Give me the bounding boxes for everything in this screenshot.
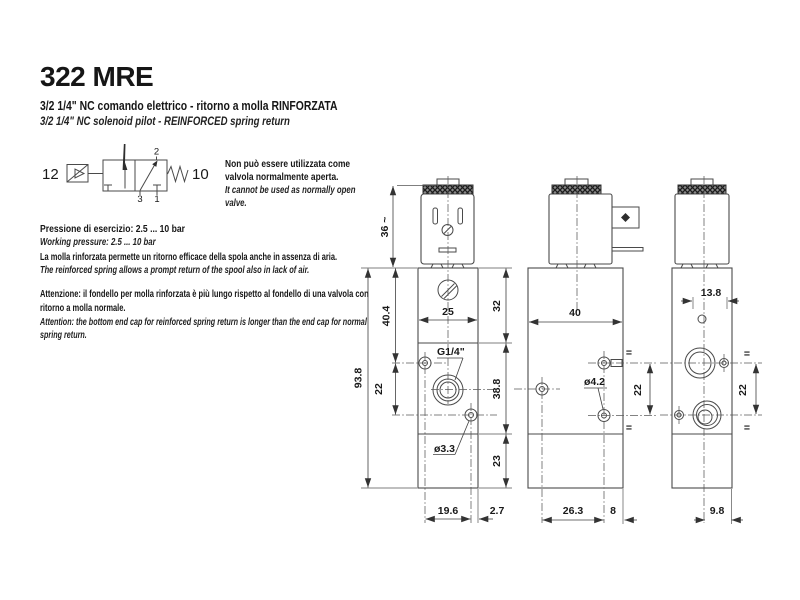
dim-front-coil-height: 36 ~ [379, 217, 391, 238]
dim-front-bottom-b: 2.7 [490, 505, 505, 517]
dim-side-equal-top: = [626, 347, 632, 359]
note-spring-english: The reinforced spring allows a prompt re… [40, 265, 309, 276]
subtitle-english: 3/2 1/4" NC solenoid pilot - REINFORCED … [40, 114, 290, 128]
pneumatic-symbol: 12 10 2 3 1 [36, 144, 241, 212]
note-nc-italian: Non può essere utilizzata come valvola n… [225, 158, 366, 184]
spring-return-symbol [168, 167, 189, 182]
back-view: 13.8 22 = = 9.8 [660, 176, 762, 524]
dim-back-port-spacing: 22 [737, 384, 749, 396]
front-view: 36 ~ 40.4 22 93.8 32 38.8 23 25 G1/4" ø3… [353, 176, 513, 523]
dim-back-bottom-offset: 9.8 [710, 505, 725, 517]
dim-front-port-spacing: 22 [373, 383, 385, 395]
front-coil [421, 179, 474, 268]
back-dimensions [681, 297, 756, 524]
note-nc-english: It cannot be used as normally open valve… [225, 185, 365, 210]
note-warning-english: Attention: the bottom end cap for reinfo… [40, 316, 371, 342]
subtitle-italian: 3/2 1/4" NC comando elettrico - ritorno … [40, 98, 338, 113]
dim-front-mid-section: 38.8 [491, 379, 503, 400]
dim-side-bottom-b: 8 [610, 505, 616, 517]
back-coil [675, 179, 729, 268]
dim-front-total-height: 93.8 [353, 368, 365, 389]
symbol-port-2: 2 [154, 147, 159, 158]
symbol-port-12: 12 [42, 166, 59, 183]
page-title: 322 MRE [40, 61, 153, 93]
dim-side-body-depth: 40 [569, 307, 581, 319]
dim-back-top-offset: 13.8 [701, 287, 722, 299]
dim-front-body-width: 25 [442, 306, 454, 318]
note-warning-italian: Attenzione: il fondello per molla rinfor… [40, 288, 394, 315]
dim-front-pilot-hole: ø3.3 [434, 443, 455, 455]
note-pressure-italian: Pressione di esercizio: 2.5 ... 10 bar [40, 223, 185, 235]
dim-side-equal-bottom: = [626, 422, 632, 434]
dim-front-bottom-a: 19.6 [438, 505, 459, 517]
dim-side-port-spacing: 22 [632, 384, 644, 396]
dim-front-top-section: 32 [491, 300, 503, 312]
side-view: 40 ø4.2 22 = = 26.3 8 [514, 176, 658, 524]
side-coil [549, 179, 643, 268]
dim-front-port-thread: G1/4" [437, 346, 465, 358]
catalog-page: { "page": { "title": "322 MRE", "subtitl… [0, 0, 800, 600]
symbol-port-10: 10 [192, 166, 209, 183]
dim-side-mount-hole: ø4.2 [584, 376, 605, 388]
dim-front-end-cap: 23 [491, 455, 503, 467]
symbol-port-3: 3 [137, 194, 142, 205]
solenoid-operator [67, 165, 103, 183]
dim-side-bottom-a: 26.3 [563, 505, 584, 517]
note-spring-italian: La molla rinforzata permette un ritorno … [40, 251, 337, 263]
symbol-port-1: 1 [154, 194, 159, 205]
dim-back-equal-top: = [744, 348, 750, 360]
dim-front-body-to-port: 40.4 [381, 306, 393, 327]
dim-back-equal-bottom: = [744, 422, 750, 434]
note-pressure-english: Working pressure: 2.5 ... 10 bar [40, 237, 156, 248]
technical-drawings: 36 ~ 40.4 22 93.8 32 38.8 23 25 G1/4" ø3… [350, 170, 800, 530]
